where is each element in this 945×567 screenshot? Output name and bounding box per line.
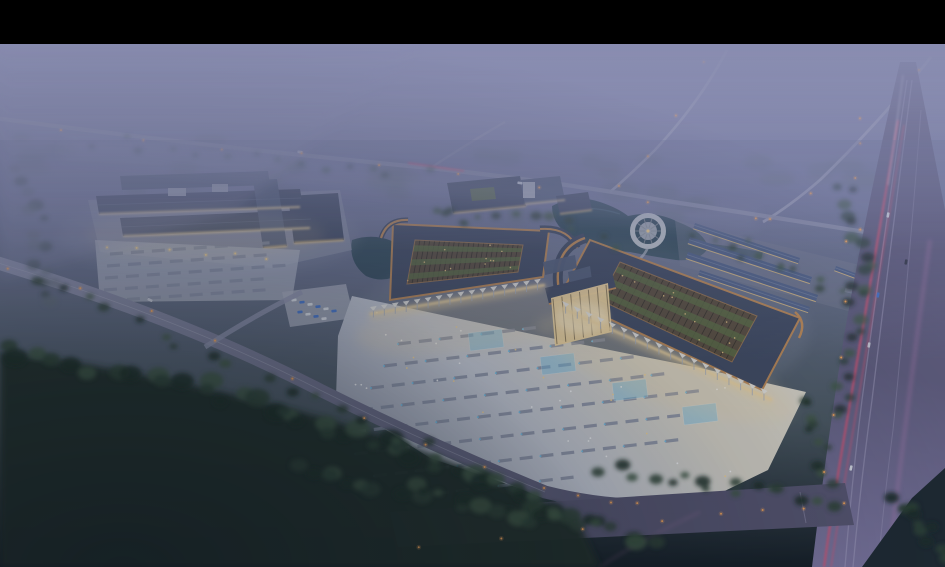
letterbox-bar [0, 0, 945, 44]
rendering-canvas [0, 0, 945, 567]
aerial-rendering [0, 0, 945, 567]
fog-overlay [0, 44, 945, 567]
